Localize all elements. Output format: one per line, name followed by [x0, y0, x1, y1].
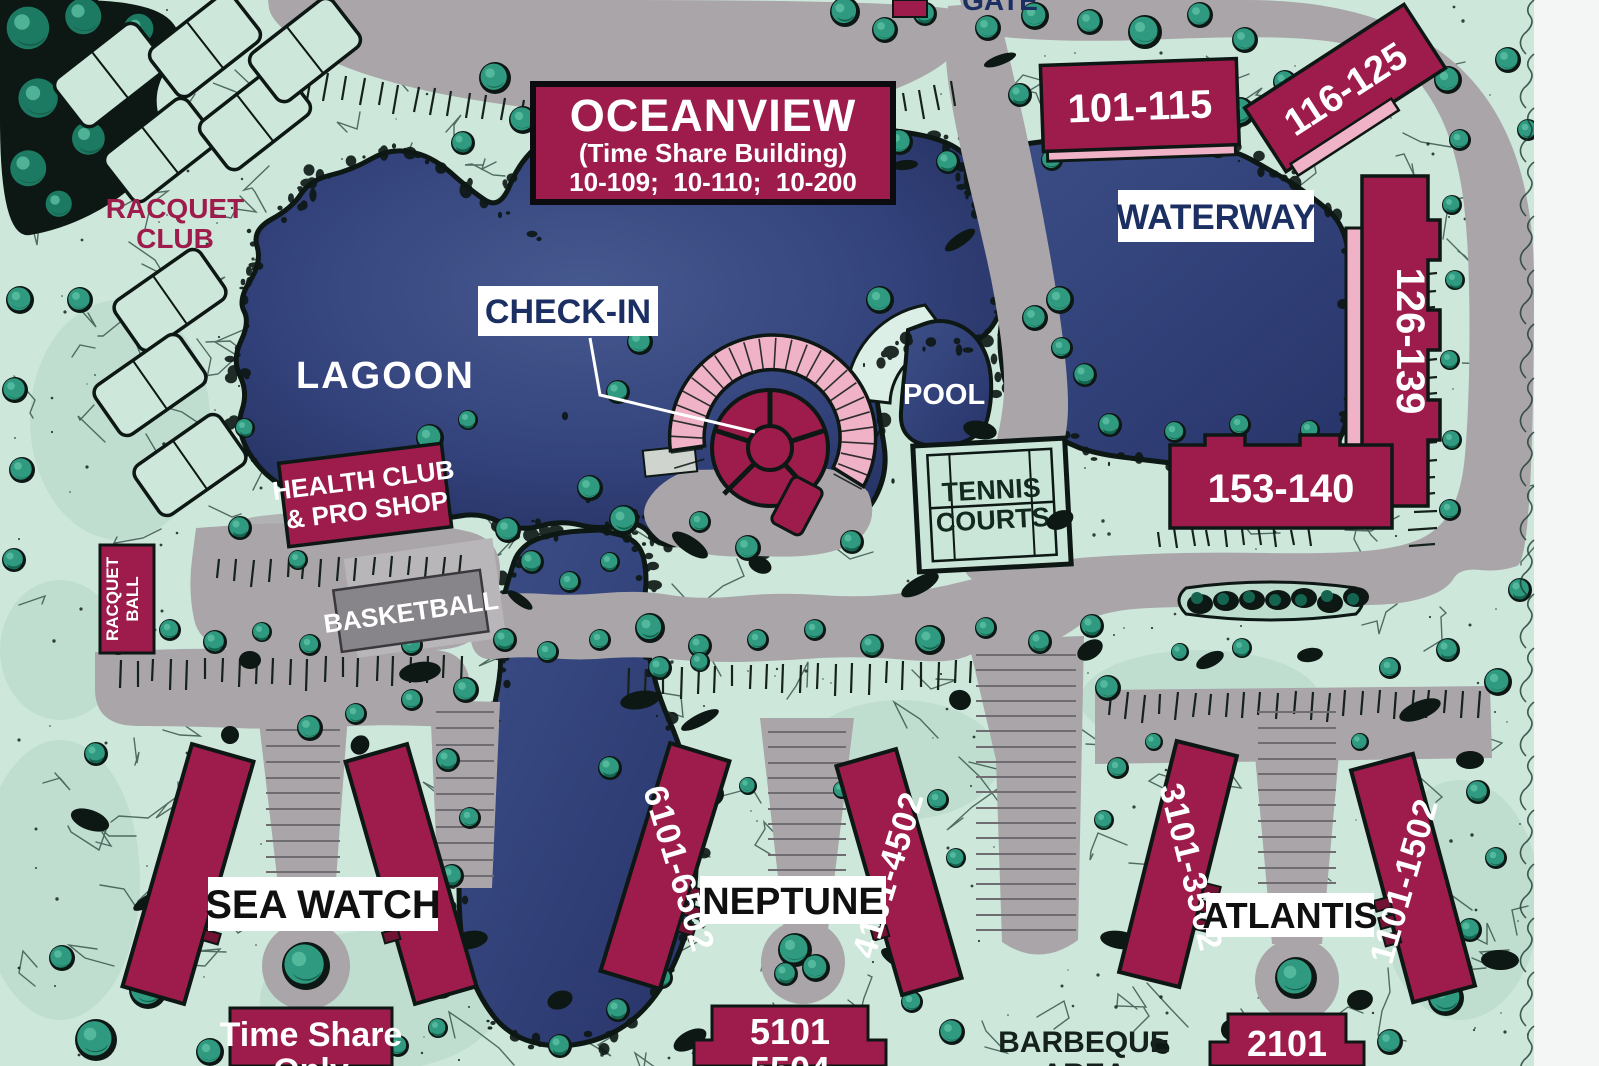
- svg-text:NEPTUNE: NEPTUNE: [702, 881, 884, 923]
- svg-text:RACQUET: RACQUET: [106, 193, 244, 224]
- svg-text:Only: Only: [273, 1052, 349, 1066]
- svg-text:(Time Share Building): (Time Share Building): [579, 138, 847, 168]
- svg-text:5101: 5101: [750, 1011, 830, 1052]
- svg-text:RACQUET: RACQUET: [103, 556, 122, 641]
- svg-text:153-140: 153-140: [1208, 467, 1355, 511]
- svg-text:BARBEQUE: BARBEQUE: [998, 1026, 1170, 1059]
- svg-text:LAGOON: LAGOON: [296, 355, 475, 397]
- svg-text:101-115: 101-115: [1067, 82, 1213, 131]
- svg-text:ATLANTIS: ATLANTIS: [1202, 895, 1377, 936]
- svg-text:COURTS: COURTS: [935, 502, 1050, 538]
- svg-text:AREA: AREA: [1041, 1058, 1126, 1066]
- svg-text:CHECK-IN: CHECK-IN: [485, 293, 651, 331]
- svg-text:OCEANVIEW: OCEANVIEW: [570, 90, 857, 141]
- svg-text:WATERWAY: WATERWAY: [1116, 198, 1316, 237]
- svg-text:CLUB: CLUB: [136, 223, 214, 254]
- svg-text:SEA WATCH: SEA WATCH: [205, 883, 441, 927]
- svg-text:BALL: BALL: [123, 576, 142, 621]
- svg-text:10-109; 10-110; 10-200: 10-109; 10-110; 10-200: [569, 167, 857, 197]
- svg-text:126-139: 126-139: [1388, 268, 1432, 415]
- svg-text:GATE: GATE: [962, 0, 1038, 16]
- svg-text:2101: 2101: [1247, 1023, 1327, 1064]
- svg-text:5504: 5504: [750, 1049, 830, 1066]
- svg-text:Time Share: Time Share: [220, 1016, 403, 1054]
- svg-text:POOL: POOL: [903, 379, 985, 411]
